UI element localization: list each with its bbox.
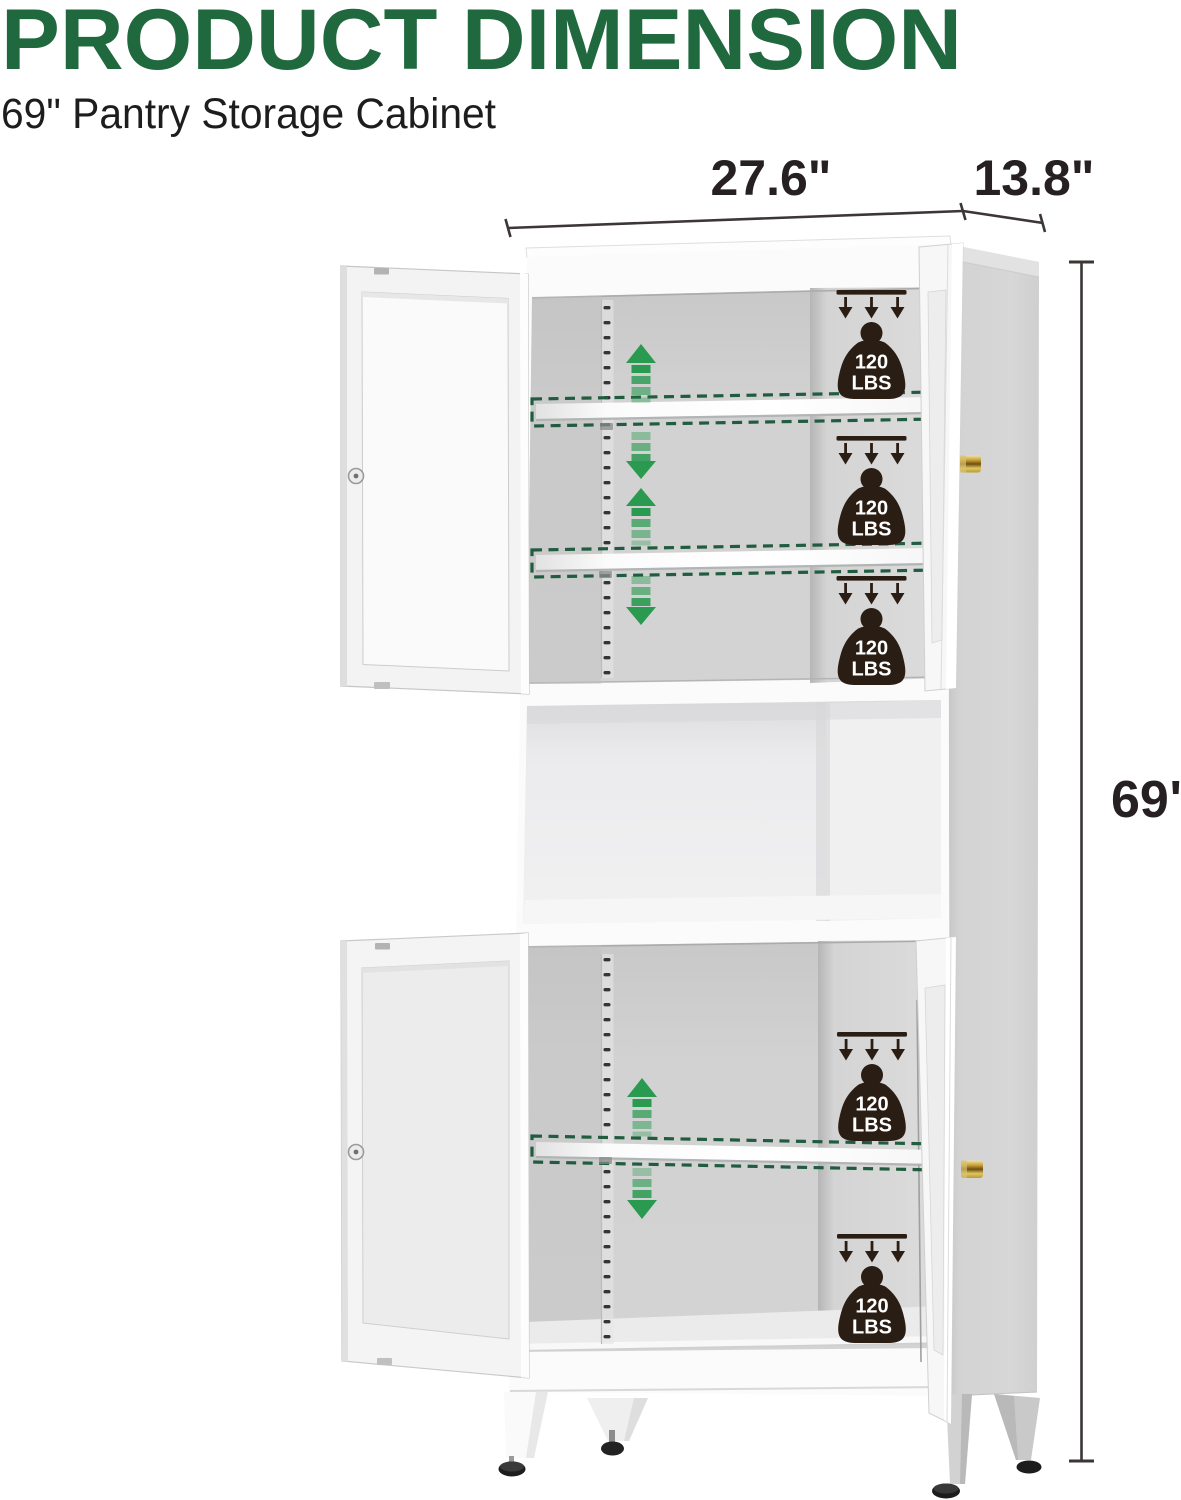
svg-text:69" Pantry Storage Cabinet: 69" Pantry Storage Cabinet [1, 90, 496, 138]
svg-text:27.6": 27.6" [710, 150, 831, 206]
svg-text:13.8": 13.8" [973, 150, 1094, 206]
svg-text:69": 69" [1111, 771, 1181, 829]
svg-text:PRODUCT DIMENSION: PRODUCT DIMENSION [1, 0, 962, 88]
